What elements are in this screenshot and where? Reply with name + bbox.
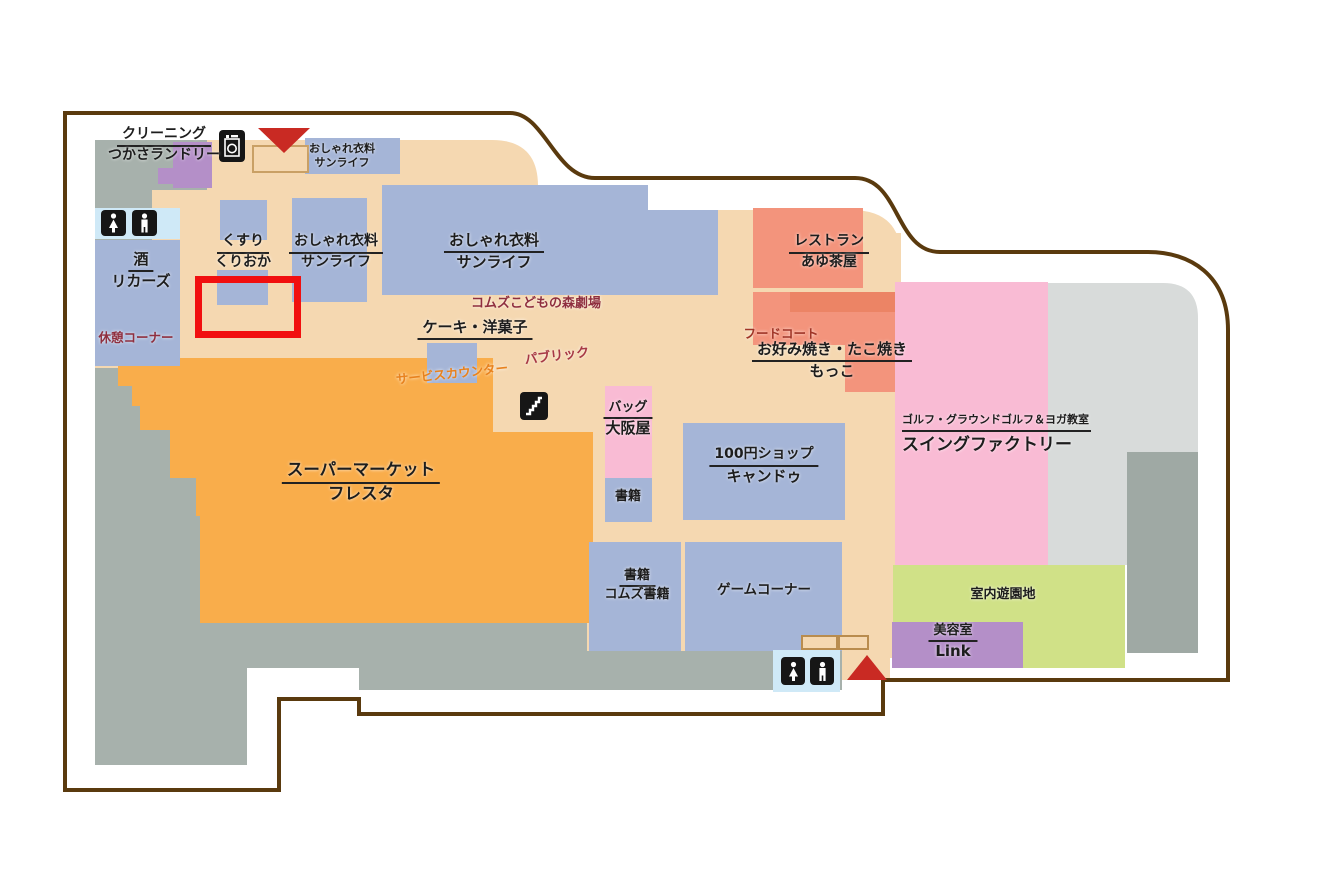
male-restroom-icon xyxy=(132,210,157,236)
service-box-a xyxy=(801,635,838,650)
stairs-icon xyxy=(520,392,548,420)
washing-machine-icon xyxy=(219,130,245,162)
backroom-east-dark xyxy=(1127,452,1198,653)
label-restaurant: レストラン あゆ茶屋 xyxy=(789,233,869,271)
label-cleaning: クリーニング つかさランドリー xyxy=(108,126,220,164)
service-box-b xyxy=(838,635,869,650)
highlight-rectangle[interactable] xyxy=(195,276,301,338)
female-restroom-icon xyxy=(101,210,126,236)
label-bag: バッグ 大阪屋 xyxy=(603,400,652,438)
label-sunlife-west: おしゃれ衣料 サンライフ xyxy=(289,233,383,271)
label-game-corner: ゲームコーナー xyxy=(717,582,811,599)
room-food-court-inner xyxy=(790,292,908,312)
male-restroom-icon xyxy=(810,657,834,685)
room-sunlife-main[interactable] xyxy=(382,185,718,295)
label-sunlife-main: おしゃれ衣料 サンライフ xyxy=(444,231,544,272)
label-rest-corner: 休憩コーナー xyxy=(98,330,173,346)
entrance-arrow-down-icon xyxy=(258,128,310,153)
female-restroom-icon xyxy=(781,657,805,685)
room-cleaning-annex[interactable] xyxy=(158,168,175,184)
label-books-small: 書籍 xyxy=(615,489,641,505)
label-hundred-yen: 100円ショップ キャンドゥ xyxy=(709,446,818,485)
label-liquor: 酒 リカーズ xyxy=(111,250,170,291)
label-okonomiyaki: お好み焼き・たこ焼き もっこ xyxy=(752,340,912,381)
label-supermarket: スーパーマーケット フレスタ xyxy=(282,460,440,504)
label-golf: ゴルフ・グラウンドゴルフ＆ヨガ教室 スイングファクトリー xyxy=(902,413,1091,456)
entrance-arrow-up-icon xyxy=(847,655,887,680)
label-cake: ケーキ・洋菓子 xyxy=(417,318,532,340)
label-beauty: 美容室 Link xyxy=(928,623,977,661)
mall-floor-map: クリーニング つかさランドリー おしゃれ衣料 サンライフ 酒 リカーズ くすり … xyxy=(0,0,1318,886)
label-theater: コムズこどもの森劇場 xyxy=(471,296,601,312)
label-sunlife-entrance: おしゃれ衣料 サンライフ xyxy=(309,142,375,170)
label-drug: くすり くりおか xyxy=(215,233,271,271)
label-playground: 室内遊園地 xyxy=(970,587,1035,603)
label-books-comz: 書籍 コムズ書籍 xyxy=(604,568,669,604)
